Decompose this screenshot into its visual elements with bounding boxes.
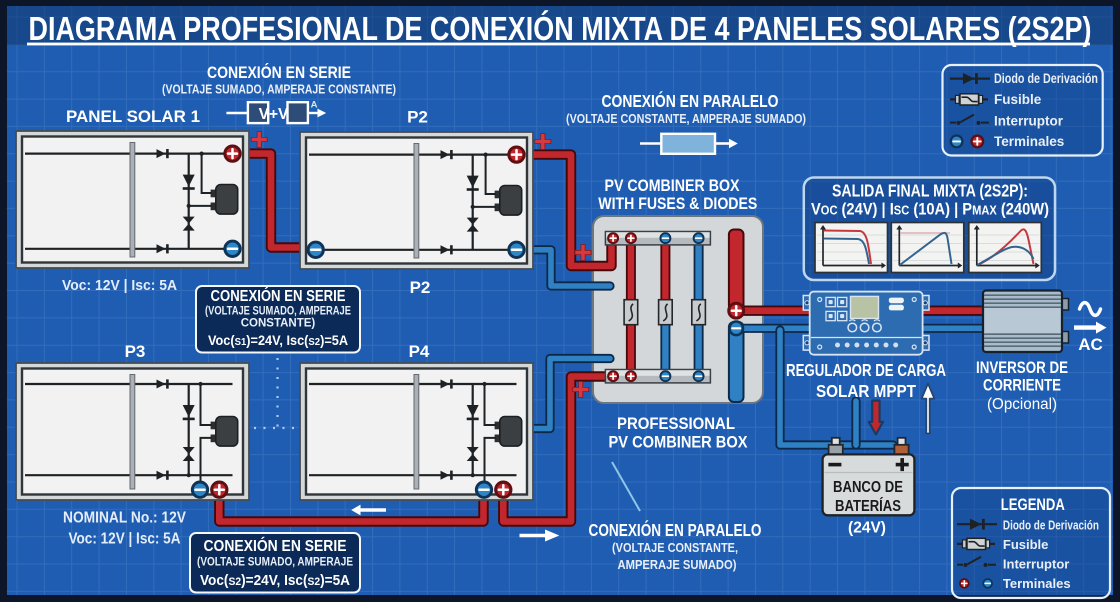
svg-text:(VOLTAJE SUMADO, AMPERAJE: (VOLTAJE SUMADO, AMPERAJE — [197, 555, 353, 569]
svg-text:Diodo de Derivación: Diodo de Derivación — [1003, 518, 1099, 533]
svg-text:(VOLTAJE CONSTANTE,: (VOLTAJE CONSTANTE, — [612, 540, 738, 555]
svg-text:(VOLTAJE CONSTANTE, AMPERAJE S: (VOLTAJE CONSTANTE, AMPERAJE SUMADO) — [566, 111, 806, 126]
svg-text:P3: P3 — [125, 342, 146, 361]
svg-text:V+V: V+V — [259, 106, 289, 123]
svg-text:P2: P2 — [410, 278, 431, 297]
svg-text:PV COMBINER BOX: PV COMBINER BOX — [609, 434, 748, 452]
svg-text:CONEXIÓN EN PARALELO: CONEXIÓN EN PARALELO — [602, 90, 779, 111]
svg-text:SALIDA FINAL MIXTA (2S2P):: SALIDA FINAL MIXTA (2S2P): — [832, 181, 1028, 201]
svg-text:Voc: 12V | Isc: 5A: Voc: 12V | Isc: 5A — [62, 277, 177, 294]
svg-text:Voc(S2)=24V, Isc(S2)=5A: Voc(S2)=24V, Isc(S2)=5A — [200, 573, 350, 589]
svg-text:PV COMBINER BOX: PV COMBINER BOX — [605, 177, 740, 195]
svg-text:REGULADOR DE CARGA: REGULADOR DE CARGA — [786, 360, 946, 380]
svg-text:CONEXIÓN EN SERIE: CONEXIÓN EN SERIE — [211, 287, 346, 305]
svg-text:NOMINAL No.: 12V: NOMINAL No.: 12V — [63, 510, 187, 527]
svg-text:(24V): (24V) — [848, 520, 886, 537]
svg-text:Diodo de Derivación: Diodo de Derivación — [994, 71, 1098, 86]
svg-text:CONSTANTE): CONSTANTE) — [241, 318, 316, 330]
svg-text:BATERÍAS: BATERÍAS — [835, 498, 901, 515]
svg-text:Terminales: Terminales — [1003, 576, 1071, 591]
svg-text:(Opcional): (Opcional) — [987, 396, 1057, 413]
svg-text:CONEXIÓN EN SERIE: CONEXIÓN EN SERIE — [207, 63, 351, 82]
svg-text:PROFESSIONAL: PROFESSIONAL — [617, 415, 735, 433]
svg-text:AC: AC — [1078, 335, 1103, 354]
svg-text:Fusible: Fusible — [994, 92, 1042, 107]
svg-text:Interruptor: Interruptor — [1003, 557, 1069, 572]
svg-text:INVERSOR DE: INVERSOR DE — [976, 359, 1068, 377]
svg-text:LEGENDA: LEGENDA — [1001, 495, 1065, 514]
svg-text:P2: P2 — [407, 108, 428, 127]
svg-text:Fusible: Fusible — [1003, 537, 1049, 552]
svg-text:VOC (24V) | ISC (10A) | PMAX (: VOC (24V) | ISC (10A) | PMAX (240W) — [811, 201, 1049, 219]
svg-text:Voc(S1)=24V, Isc(S2)=5A: Voc(S1)=24V, Isc(S2)=5A — [208, 332, 348, 348]
svg-text:Terminales: Terminales — [994, 134, 1064, 149]
svg-text:CORRIENTE: CORRIENTE — [983, 377, 1061, 395]
svg-text:(VOLTAJE SUMADO, AMPERAJE: (VOLTAJE SUMADO, AMPERAJE — [205, 306, 351, 318]
svg-text:WITH FUSES & DIODES: WITH FUSES & DIODES — [598, 195, 757, 213]
svg-text:Interruptor: Interruptor — [994, 114, 1064, 129]
svg-text:CONEXIÓN EN SERIE: CONEXIÓN EN SERIE — [204, 536, 347, 555]
svg-text:SOLAR MPPT: SOLAR MPPT — [816, 381, 916, 401]
svg-text:A: A — [311, 100, 318, 111]
svg-text:(VOLTAJE SUMADO, AMPERAJE CONS: (VOLTAJE SUMADO, AMPERAJE CONSTANTE) — [162, 83, 396, 97]
svg-text:Voc: 12V | Isc: 5A: Voc: 12V | Isc: 5A — [69, 531, 181, 548]
svg-text:DIAGRAMA PROFESIONAL DE CONEXI: DIAGRAMA PROFESIONAL DE CONEXIÓN MIXTA D… — [29, 10, 1092, 47]
svg-text:P4: P4 — [409, 342, 430, 361]
svg-text:AMPERAJE SUMADO): AMPERAJE SUMADO) — [618, 557, 737, 572]
svg-text:CONEXIÓN EN PARALELO: CONEXIÓN EN PARALELO — [589, 519, 762, 540]
svg-text:PANEL SOLAR 1: PANEL SOLAR 1 — [66, 108, 200, 126]
svg-text:BANCO DE: BANCO DE — [833, 479, 903, 496]
